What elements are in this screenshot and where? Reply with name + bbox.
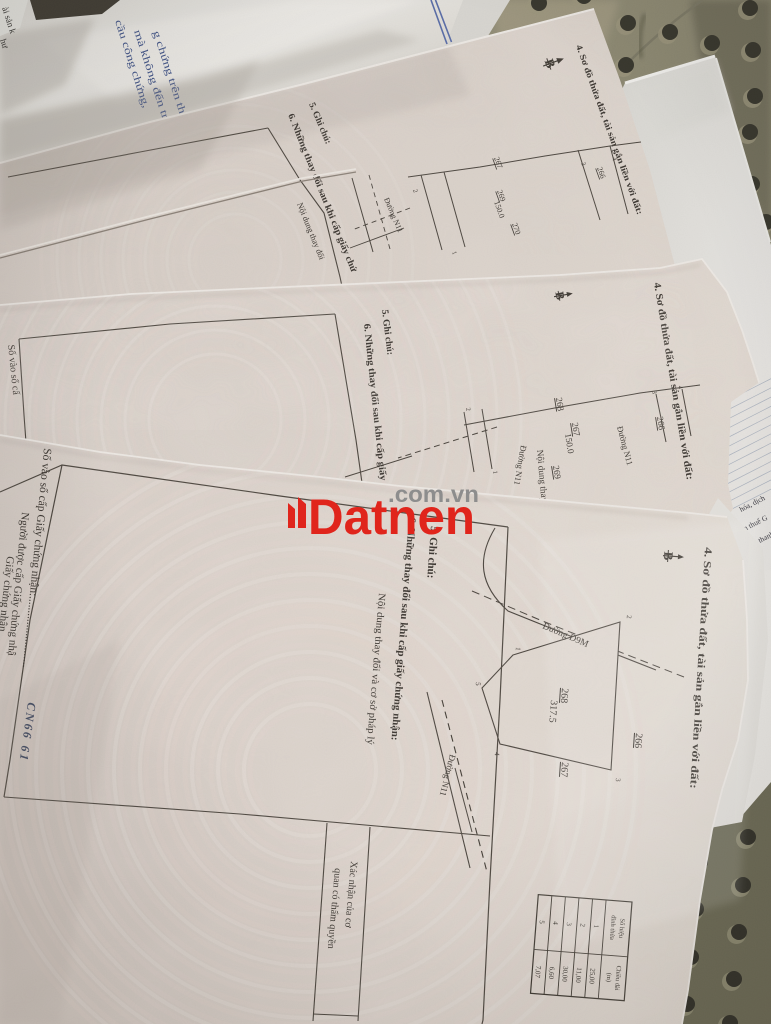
svg-text:.com.vn: .com.vn <box>388 481 479 507</box>
